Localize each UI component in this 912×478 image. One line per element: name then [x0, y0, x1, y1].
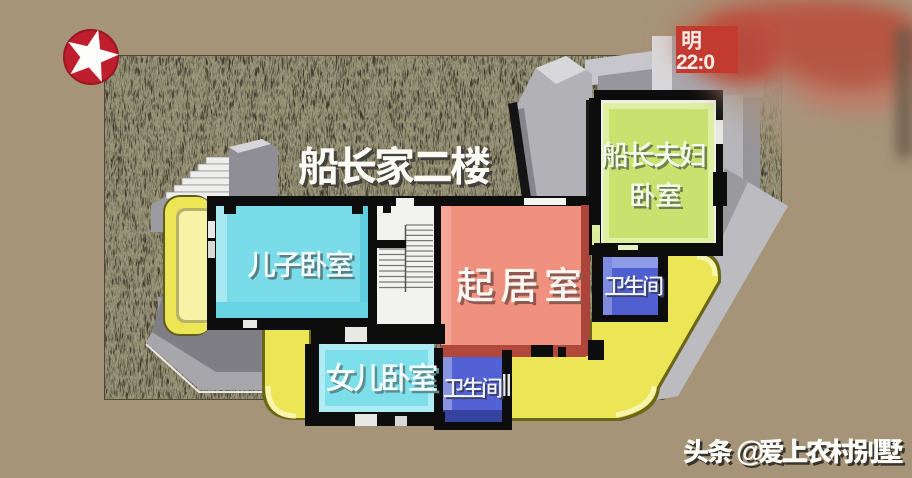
- svg-text:22:0: 22:0: [676, 51, 714, 74]
- svg-text:@: @: [736, 436, 764, 468]
